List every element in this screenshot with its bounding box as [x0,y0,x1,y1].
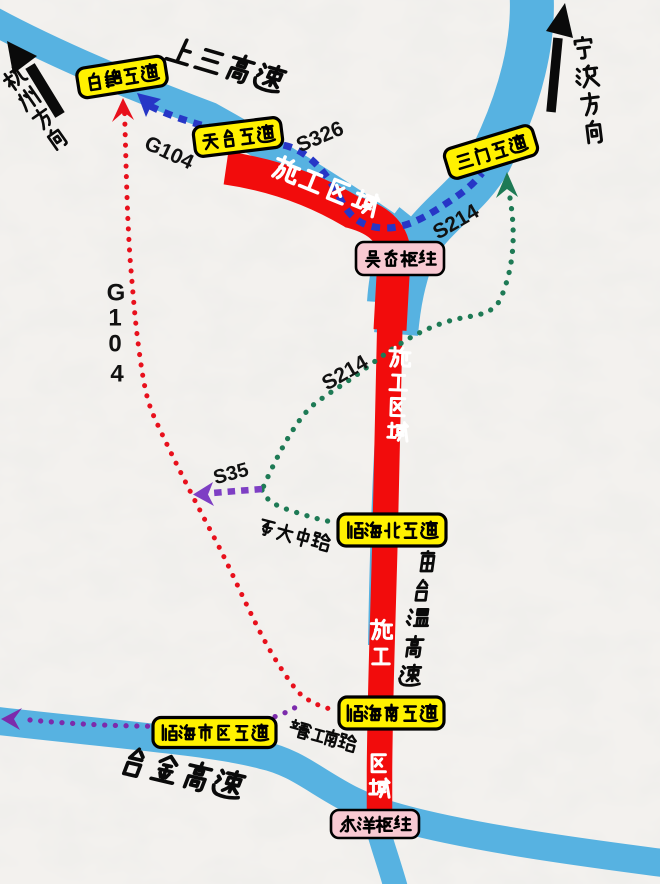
svg-text:0: 0 [108,331,121,358]
svg-text:4: 4 [110,361,124,388]
svg-text:1: 1 [108,305,121,332]
svg-text:G: G [107,280,126,307]
